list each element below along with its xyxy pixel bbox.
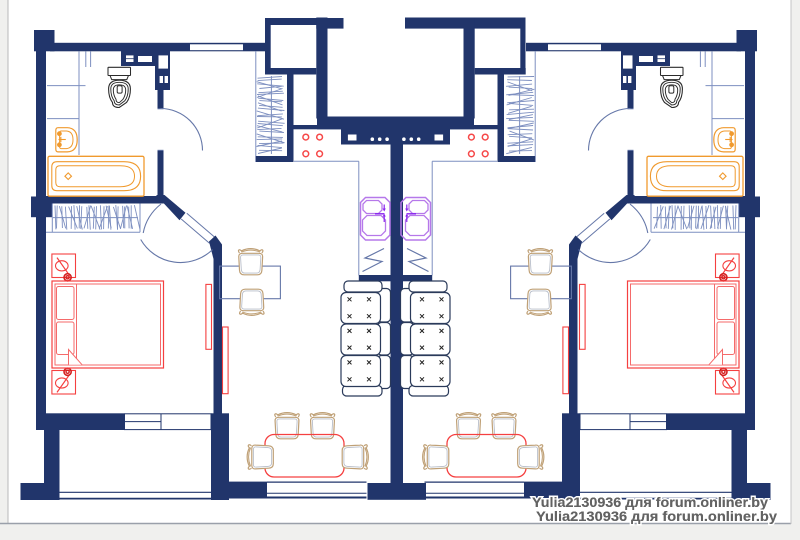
svg-text:Yulia2130936 для forum.onliner: Yulia2130936 для forum.onliner.by: [536, 508, 777, 524]
